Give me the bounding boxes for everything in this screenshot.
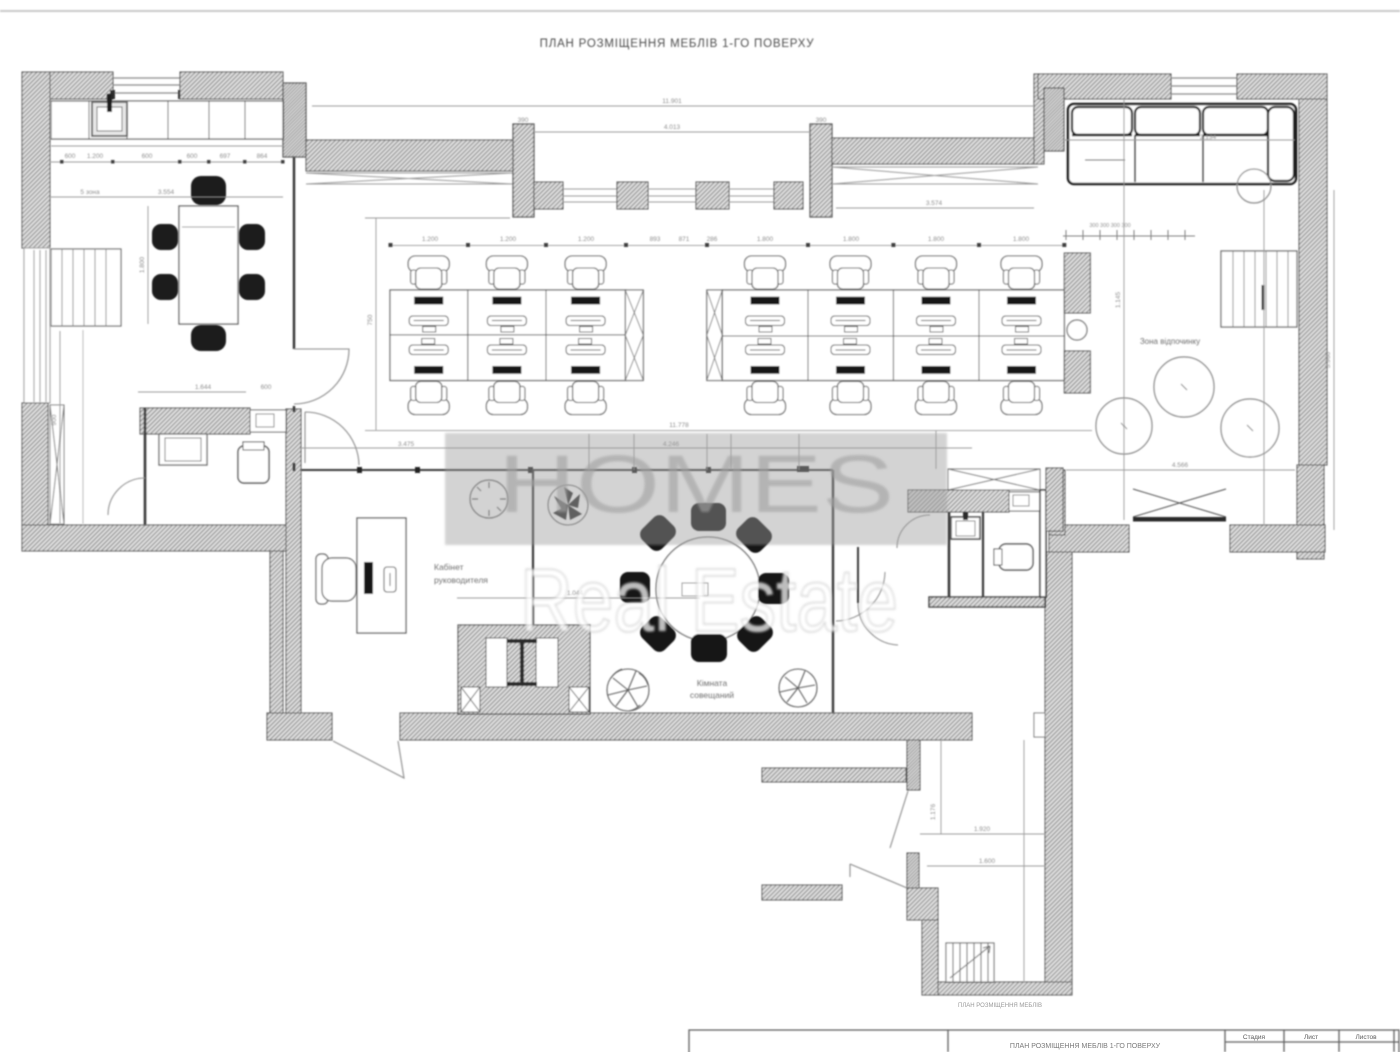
svg-text:5 зона: 5 зона: [80, 189, 100, 196]
svg-text:600: 600: [187, 153, 198, 160]
svg-text:11.901: 11.901: [662, 98, 682, 105]
svg-text:Стадия: Стадия: [1243, 1034, 1266, 1041]
svg-text:600: 600: [261, 384, 272, 391]
svg-text:Зона відпочинку: Зона відпочинку: [1140, 337, 1200, 346]
svg-text:1.920: 1.920: [974, 826, 991, 833]
svg-text:ПЛАН РОЗМІЩЕННЯ МЕБЛІВ 1-ГО ПО: ПЛАН РОЗМІЩЕННЯ МЕБЛІВ 1-ГО ПОВЕРХУ: [540, 38, 815, 50]
svg-text:900: 900: [51, 414, 58, 425]
svg-text:5.960: 5.960: [1325, 351, 1332, 368]
svg-text:750: 750: [367, 314, 374, 325]
svg-text:871: 871: [679, 236, 690, 243]
svg-text:1.145: 1.145: [1115, 291, 1122, 308]
svg-text:Листов: Листов: [1355, 1034, 1377, 1041]
svg-text:ПЛАН РОЗМІЩЕННЯ МЕБЛІВ 1-ГО ПО: ПЛАН РОЗМІЩЕННЯ МЕБЛІВ 1-ГО ПОВЕРХУ: [1010, 1043, 1161, 1050]
svg-text:600: 600: [142, 153, 153, 160]
svg-text:3.475: 3.475: [398, 441, 415, 448]
svg-text:Кабінет: Кабінет: [434, 562, 464, 572]
svg-text:390: 390: [518, 117, 529, 124]
svg-text:1.200: 1.200: [422, 236, 439, 243]
svg-text:893: 893: [650, 236, 661, 243]
svg-text:Real Estate: Real Estate: [520, 551, 898, 651]
svg-text:697: 697: [220, 153, 231, 160]
svg-text:1.176: 1.176: [930, 803, 937, 820]
svg-text:1.800: 1.800: [757, 236, 774, 243]
svg-text:совещаний: совещаний: [690, 690, 734, 700]
svg-text:Кімната: Кімната: [697, 678, 728, 688]
svg-text:1.800: 1.800: [928, 236, 945, 243]
svg-text:HOMES: HOMES: [498, 439, 894, 530]
svg-text:1.644: 1.644: [195, 384, 212, 391]
svg-text:300 300 300 300: 300 300 300 300: [1089, 223, 1130, 229]
svg-text:1.200: 1.200: [578, 236, 595, 243]
svg-text:1.200: 1.200: [500, 236, 517, 243]
svg-text:3.554: 3.554: [158, 189, 175, 196]
svg-text:4.013: 4.013: [664, 124, 681, 131]
svg-text:1.600: 1.600: [979, 858, 996, 865]
svg-text:864: 864: [257, 153, 268, 160]
svg-text:2.134: 2.134: [1200, 134, 1217, 141]
svg-text:11.778: 11.778: [669, 422, 689, 429]
svg-text:руководителя: руководителя: [434, 575, 488, 585]
svg-text:4.566: 4.566: [1172, 462, 1189, 469]
svg-text:1.800: 1.800: [843, 236, 860, 243]
svg-text:Лист: Лист: [1304, 1034, 1318, 1041]
svg-text:1.800: 1.800: [1013, 236, 1030, 243]
svg-text:286: 286: [707, 236, 718, 243]
svg-text:1.800: 1.800: [139, 256, 146, 273]
svg-text:ПЛАН РОЗМІЩЕННЯ МЕБЛІВ: ПЛАН РОЗМІЩЕННЯ МЕБЛІВ: [958, 1003, 1042, 1009]
svg-text:3.574: 3.574: [926, 200, 943, 207]
svg-text:600: 600: [65, 153, 76, 160]
svg-text:390: 390: [816, 117, 827, 124]
svg-text:1.200: 1.200: [87, 153, 104, 160]
